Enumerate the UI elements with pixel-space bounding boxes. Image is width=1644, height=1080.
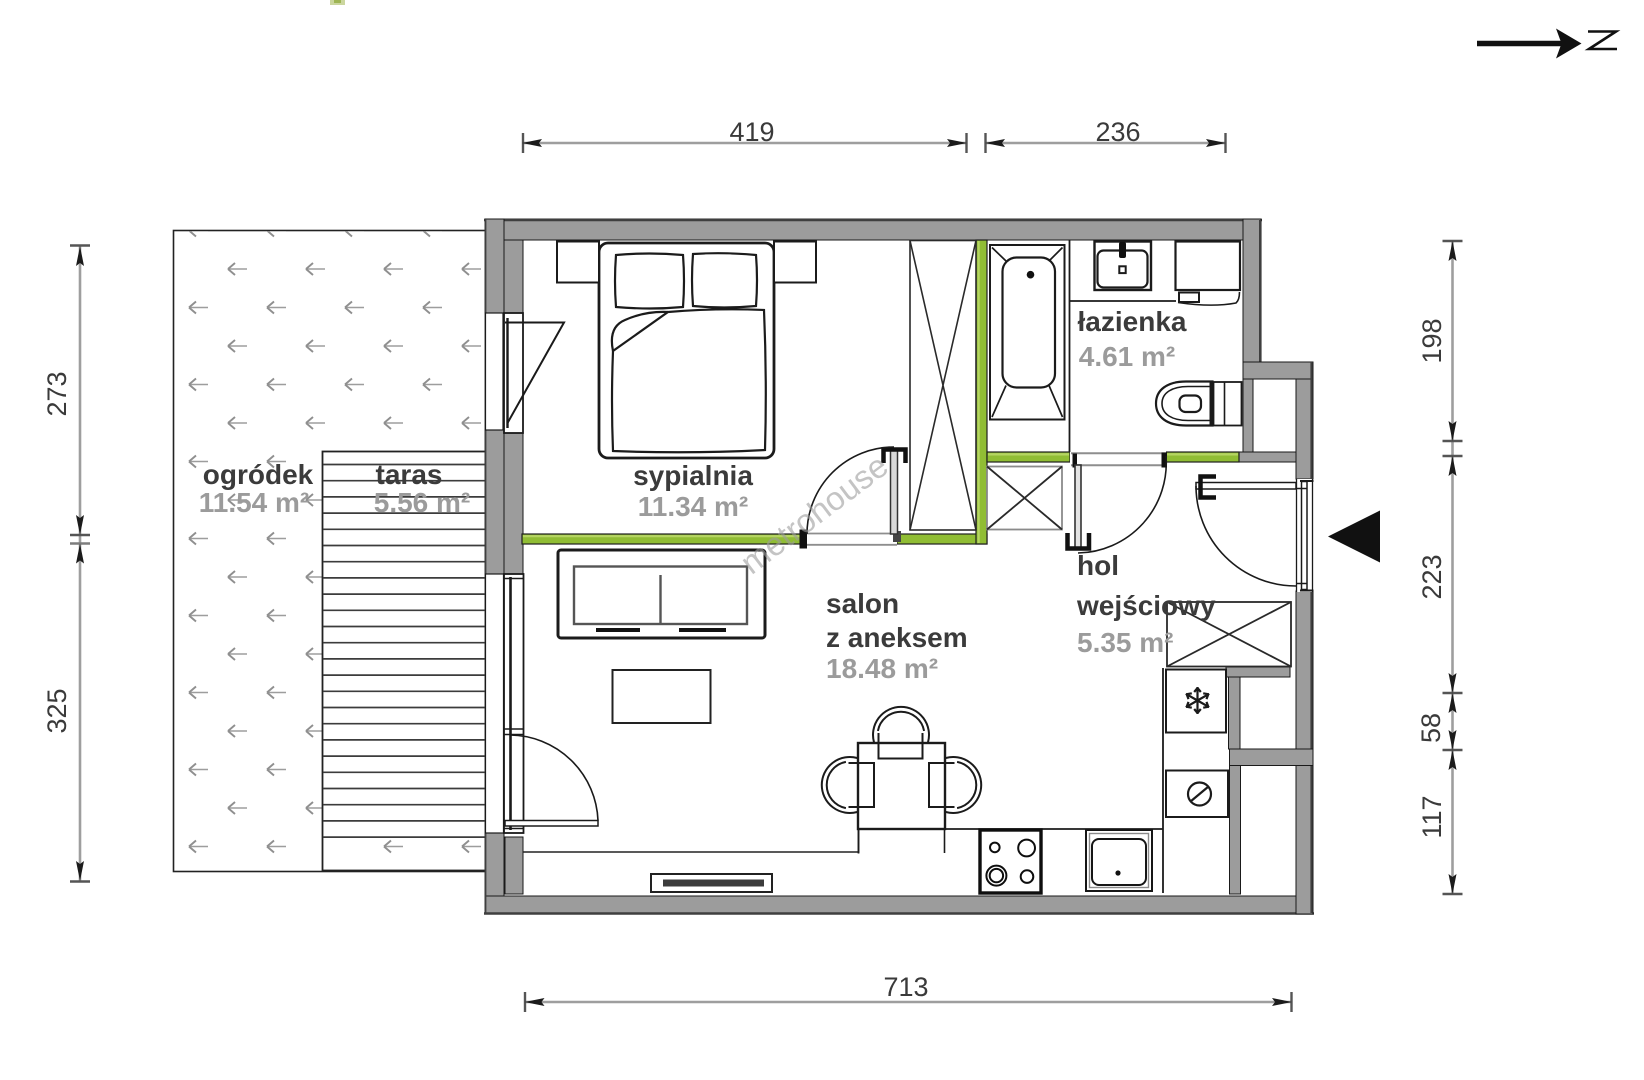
svg-text:325: 325 bbox=[42, 688, 72, 733]
svg-text:5.56 m²: 5.56 m² bbox=[374, 487, 471, 518]
svg-text:18.48 m²: 18.48 m² bbox=[826, 653, 938, 684]
svg-text:hol: hol bbox=[1077, 550, 1119, 581]
svg-text:4.61 m²: 4.61 m² bbox=[1079, 341, 1176, 372]
svg-text:z aneksem: z aneksem bbox=[826, 622, 968, 653]
svg-text:58: 58 bbox=[1416, 713, 1446, 743]
svg-text:łazienka: łazienka bbox=[1078, 306, 1187, 337]
svg-text:117: 117 bbox=[1417, 795, 1447, 838]
svg-text:sypialnia: sypialnia bbox=[633, 460, 753, 491]
svg-text:198: 198 bbox=[1417, 318, 1447, 363]
svg-text:taras: taras bbox=[376, 459, 443, 490]
svg-text:wejściowy: wejściowy bbox=[1076, 590, 1216, 621]
svg-text:11.34 m²: 11.34 m² bbox=[638, 491, 749, 522]
svg-text:salon: salon bbox=[826, 588, 899, 619]
svg-text:223: 223 bbox=[1417, 554, 1447, 599]
svg-text:5.35 m²: 5.35 m² bbox=[1077, 627, 1174, 658]
svg-text:11.54 m²: 11.54 m² bbox=[199, 487, 310, 518]
svg-text:419: 419 bbox=[729, 117, 774, 147]
svg-text:713: 713 bbox=[883, 972, 928, 1002]
svg-text:236: 236 bbox=[1095, 117, 1140, 147]
svg-text:273: 273 bbox=[42, 371, 72, 416]
svg-text:ogródek: ogródek bbox=[203, 459, 314, 490]
